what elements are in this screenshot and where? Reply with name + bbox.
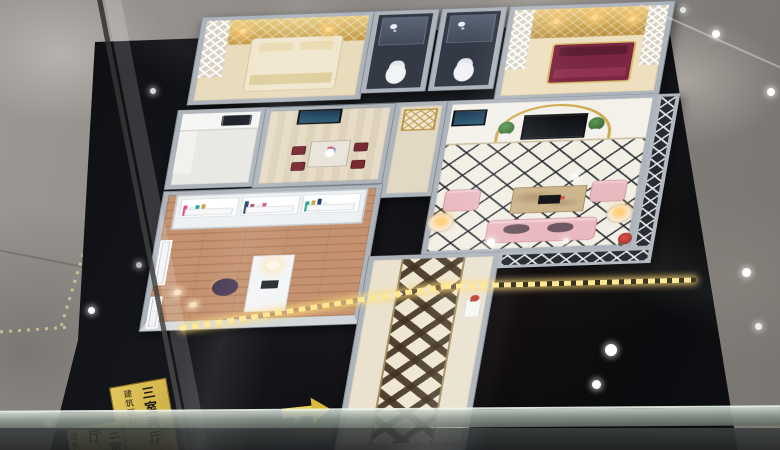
- shower-head: [458, 22, 466, 27]
- pillows: [259, 42, 295, 52]
- wall-tv: [451, 109, 488, 126]
- shower-head: [390, 24, 398, 29]
- writing-desk: [243, 254, 295, 312]
- ceiling-light-reflection: [136, 262, 142, 268]
- bookshelf: [171, 188, 369, 229]
- gold-lattice-mirror: [401, 108, 439, 131]
- cabinet-door: [245, 205, 294, 213]
- kitchen-counter-side: [173, 131, 198, 174]
- bedroom-second: [188, 12, 375, 105]
- table-lamp: [614, 208, 625, 216]
- stove: [221, 115, 253, 126]
- side-table: [605, 204, 634, 224]
- shower-enclosure: [446, 14, 497, 43]
- dining-chair: [353, 142, 369, 151]
- ceiling-light-reflection: [680, 7, 686, 13]
- pillows: [559, 45, 628, 56]
- bed-throw: [249, 72, 333, 85]
- dining-chair: [350, 160, 366, 169]
- living-room-tv: [520, 113, 588, 140]
- bookshelf-cell: [301, 193, 362, 214]
- bookshelf-cell: [240, 195, 301, 216]
- sofa-cushion: [546, 222, 574, 232]
- toilet: [384, 65, 407, 85]
- side-table: [426, 213, 455, 233]
- kitchen: [165, 108, 267, 189]
- ceiling-light-reflection: [767, 88, 775, 96]
- desk-lamp: [266, 260, 281, 270]
- ceiling-light-reflection: [592, 380, 601, 389]
- lattice-screen: [505, 10, 535, 70]
- red-flower-pot: [617, 233, 633, 245]
- floor-light-reflection: [189, 302, 198, 308]
- bed: [243, 35, 344, 92]
- living-room: [421, 94, 658, 255]
- ceiling-light-reflection: [150, 88, 156, 94]
- console-table: [463, 298, 482, 317]
- dining-chair: [291, 146, 307, 155]
- bathroom-1: [361, 9, 439, 92]
- showroom-scale-model-photo: 三室两厅 建筑面积 三室两厅 建筑面积: [0, 0, 780, 450]
- table-lamp: [436, 217, 447, 225]
- flower-arrangement: [470, 295, 480, 302]
- master-bedroom: [494, 1, 674, 100]
- wall-tv: [296, 109, 343, 125]
- pink-sofa: [484, 216, 598, 243]
- bed-throw: [553, 67, 626, 78]
- pink-armchair: [589, 179, 629, 202]
- ceiling-light-reflection: [563, 238, 569, 244]
- ceiling-light-reflection: [742, 268, 751, 277]
- carved-lattice-panel: [197, 20, 231, 77]
- shadow-under-glass: [0, 428, 780, 450]
- bookshelf-cell: [179, 197, 240, 218]
- toilet: [452, 62, 475, 82]
- dining-table: [307, 140, 352, 167]
- desk-chair: [210, 278, 239, 296]
- bathroom-2: [429, 7, 507, 90]
- apartment-model: [116, 1, 675, 450]
- tv-feature-wall: [446, 98, 653, 146]
- sofa-cushion: [503, 224, 531, 234]
- kitchen-counter: [180, 112, 261, 132]
- shower-enclosure: [378, 16, 429, 45]
- dining-room: [253, 103, 397, 187]
- maroon-bed: [546, 41, 637, 85]
- dining-chair: [290, 162, 306, 171]
- ceiling-light-reflection: [88, 307, 95, 314]
- marble-coffee-table: [509, 185, 588, 214]
- cabinet-door: [184, 208, 233, 216]
- ceiling-light-reflection: [755, 323, 762, 330]
- tea-tray: [538, 195, 562, 204]
- flower-vase: [324, 149, 335, 158]
- pink-armchair: [442, 189, 482, 212]
- ceiling-light-reflection: [572, 174, 579, 181]
- laptop: [260, 280, 278, 289]
- ceiling-light-reflection: [605, 344, 617, 356]
- cabinet-door: [306, 203, 355, 211]
- ceiling-light-reflection: [487, 238, 495, 246]
